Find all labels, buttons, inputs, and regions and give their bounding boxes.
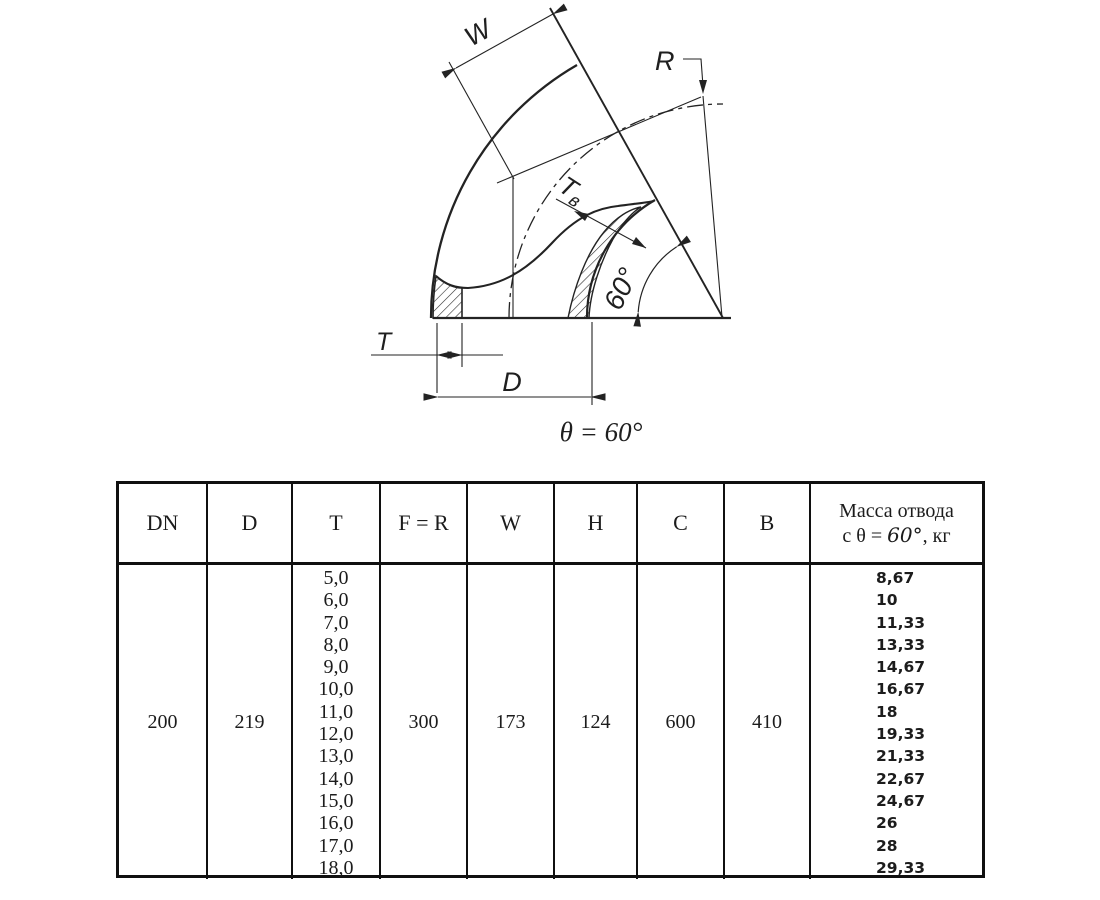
header-b: B [725, 484, 809, 565]
value-fr: 300 [381, 565, 466, 879]
header-fr: F = R [381, 484, 466, 565]
t-value: 5,0 [324, 567, 349, 589]
mass-value: 22,67 [876, 768, 925, 790]
header-w: W [468, 484, 553, 565]
header-d: D [208, 484, 291, 565]
mass-header-prefix: с θ = [842, 525, 887, 547]
t-value: 8,0 [324, 634, 349, 656]
t-value: 10,0 [319, 678, 354, 700]
value-d: 219 [208, 565, 291, 879]
dimensions-table: DN 200 D 219 T 5,06,07,08,09,010,011,012… [116, 481, 985, 878]
r-arrowhead [699, 80, 707, 94]
mass-value: 28 [876, 835, 898, 857]
elbow-drawing-area: W R Тв 60° T D θ = 60° [0, 0, 1100, 465]
t-value: 12,0 [319, 723, 354, 745]
d-dimension: D [438, 322, 592, 405]
t-value: 13,0 [319, 745, 354, 767]
mass-value: 14,67 [876, 656, 925, 678]
mass-value: 21,33 [876, 745, 925, 767]
column-d: D 219 [208, 484, 293, 879]
mass-value: 19,33 [876, 723, 925, 745]
header-t: T [293, 484, 379, 565]
header-dn: DN [119, 484, 206, 565]
t-value: 7,0 [324, 612, 349, 634]
r-radius-line [703, 96, 722, 317]
column-t: T 5,06,07,08,09,010,011,012,013,014,015,… [293, 484, 381, 879]
r-leader: R [655, 46, 722, 317]
t-value: 9,0 [324, 656, 349, 678]
mass-value: 11,33 [876, 612, 925, 634]
value-dn: 200 [119, 565, 206, 879]
column-dn: DN 200 [119, 484, 208, 879]
mass-header-suffix: , кг [923, 525, 951, 547]
value-h: 124 [555, 565, 636, 879]
header-mass: Масса отвода с θ = 60°, кг [811, 484, 982, 565]
mass-header-angle: 60° [887, 523, 922, 547]
mass-value: 10 [876, 589, 898, 611]
t-value: 18,0 [319, 857, 354, 879]
t-value: 6,0 [324, 589, 349, 611]
column-mass: Масса отвода с θ = 60°, кг 8,671011,3313… [811, 484, 982, 879]
theta-caption: θ = 60° [560, 417, 643, 447]
tv-arrowhead-upper [574, 211, 589, 221]
mass-value: 18 [876, 701, 898, 723]
mass-header-line1: Масса отвода [839, 499, 954, 523]
w-dimension: W [449, 12, 553, 179]
t-value: 17,0 [319, 835, 354, 857]
mass-value: 29,33 [876, 857, 925, 879]
mass-value: 16,67 [876, 678, 925, 700]
column-h: H 124 [555, 484, 638, 879]
d-label: D [502, 367, 522, 397]
t-value: 11,0 [319, 701, 353, 723]
oblique-construction-line [497, 97, 701, 183]
t-label: T [376, 328, 393, 356]
t-values-cell: 5,06,07,08,09,010,011,012,013,014,015,01… [293, 565, 379, 879]
r-label: R [655, 46, 675, 76]
mass-value: 8,67 [876, 567, 914, 589]
w-label: W [459, 12, 498, 52]
t-value: 14,0 [319, 768, 354, 790]
t-value: 16,0 [319, 812, 354, 834]
tv-label: Тв [552, 170, 591, 211]
column-b: B 410 [725, 484, 811, 879]
w-extension-line [449, 62, 514, 179]
header-c: C [638, 484, 723, 565]
mass-values-cell: 8,671011,3313,3314,6716,671819,3321,3322… [811, 565, 982, 879]
tv-arrowhead-lower [632, 237, 646, 248]
value-w: 173 [468, 565, 553, 879]
column-fr: F = R 300 [381, 484, 468, 879]
value-c: 600 [638, 565, 723, 879]
angle-60-arc: 60° [598, 247, 677, 315]
mass-value: 26 [876, 812, 898, 834]
t-value: 15,0 [319, 790, 354, 812]
column-c: C 600 [638, 484, 725, 879]
hatched-section-left-wall [433, 276, 462, 318]
catalog-page: { "drawing": { "labels": { "w": "W", "r"… [0, 0, 1100, 900]
t-dimension: T [371, 323, 503, 393]
column-w: W 173 [468, 484, 555, 879]
angle-60-label: 60° [598, 263, 644, 315]
value-b: 410 [725, 565, 809, 879]
mass-header-line2: с θ = 60°, кг [839, 523, 954, 548]
mass-value: 24,67 [876, 790, 925, 812]
mass-value: 13,33 [876, 634, 925, 656]
header-h: H [555, 484, 636, 565]
elbow-60deg-drawing: W R Тв 60° T D θ = 60° [0, 0, 1100, 465]
